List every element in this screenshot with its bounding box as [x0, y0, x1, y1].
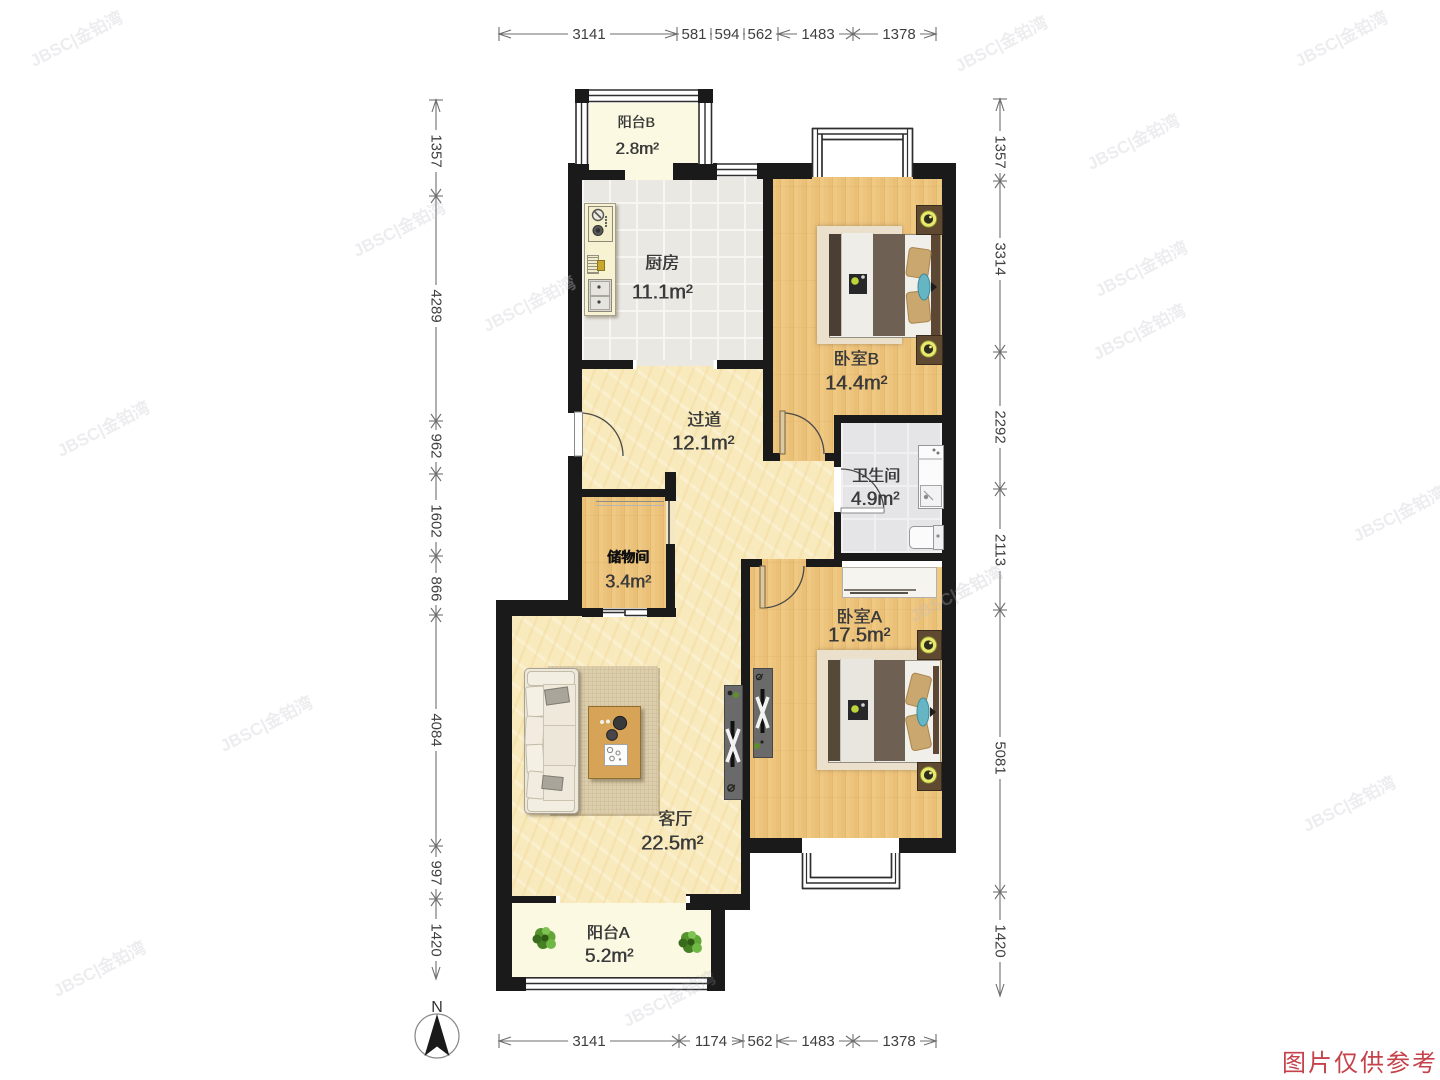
svg-text:3314: 3314 — [992, 242, 1009, 275]
svg-text:1357: 1357 — [428, 134, 445, 167]
svg-text:866: 866 — [428, 576, 445, 601]
svg-text:562: 562 — [747, 26, 772, 43]
svg-text:1378: 1378 — [882, 26, 915, 43]
svg-text:3141: 3141 — [572, 1033, 605, 1050]
svg-text:594: 594 — [714, 26, 739, 43]
svg-text:1357: 1357 — [992, 135, 1009, 168]
svg-text:562: 562 — [747, 1033, 772, 1050]
svg-text:962: 962 — [428, 433, 445, 458]
svg-text:3141: 3141 — [572, 26, 605, 43]
svg-text:4084: 4084 — [428, 713, 445, 746]
svg-text:4289: 4289 — [428, 289, 445, 322]
svg-text:1174: 1174 — [695, 1033, 727, 1050]
svg-text:N: N — [431, 999, 443, 1016]
svg-text:997: 997 — [428, 860, 445, 885]
svg-text:1420: 1420 — [992, 924, 1009, 957]
svg-text:1483: 1483 — [801, 1033, 834, 1050]
svg-text:1420: 1420 — [428, 923, 445, 956]
svg-text:1483: 1483 — [801, 26, 834, 43]
svg-text:1378: 1378 — [882, 1033, 915, 1050]
svg-text:5081: 5081 — [992, 741, 1009, 774]
svg-text:581: 581 — [681, 26, 706, 43]
svg-text:2292: 2292 — [992, 410, 1009, 443]
svg-text:1602: 1602 — [428, 504, 445, 537]
